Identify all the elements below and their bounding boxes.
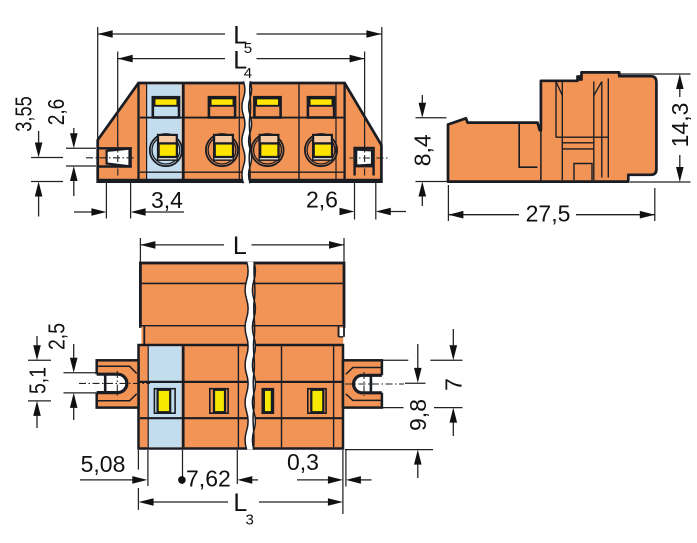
svg-text:2,6: 2,6 bbox=[306, 187, 338, 213]
svg-text:27,5: 27,5 bbox=[526, 201, 571, 227]
svg-text:4: 4 bbox=[244, 65, 252, 82]
svg-text:7: 7 bbox=[441, 378, 467, 391]
svg-text:L: L bbox=[233, 232, 247, 260]
svg-text:2,5: 2,5 bbox=[44, 323, 70, 350]
svg-text:7,62: 7,62 bbox=[186, 466, 231, 492]
svg-text:3: 3 bbox=[246, 512, 254, 529]
svg-text:0,3: 0,3 bbox=[287, 449, 319, 475]
svg-text:8,4: 8,4 bbox=[410, 134, 436, 166]
svg-text:3,55: 3,55 bbox=[11, 96, 37, 132]
svg-text:14,3: 14,3 bbox=[667, 103, 693, 148]
svg-text:2,6: 2,6 bbox=[43, 99, 69, 126]
svg-text:5,1: 5,1 bbox=[25, 367, 51, 394]
svg-text:5,08: 5,08 bbox=[81, 451, 126, 477]
svg-text:9,8: 9,8 bbox=[405, 399, 431, 431]
svg-text:3,4: 3,4 bbox=[151, 187, 183, 213]
